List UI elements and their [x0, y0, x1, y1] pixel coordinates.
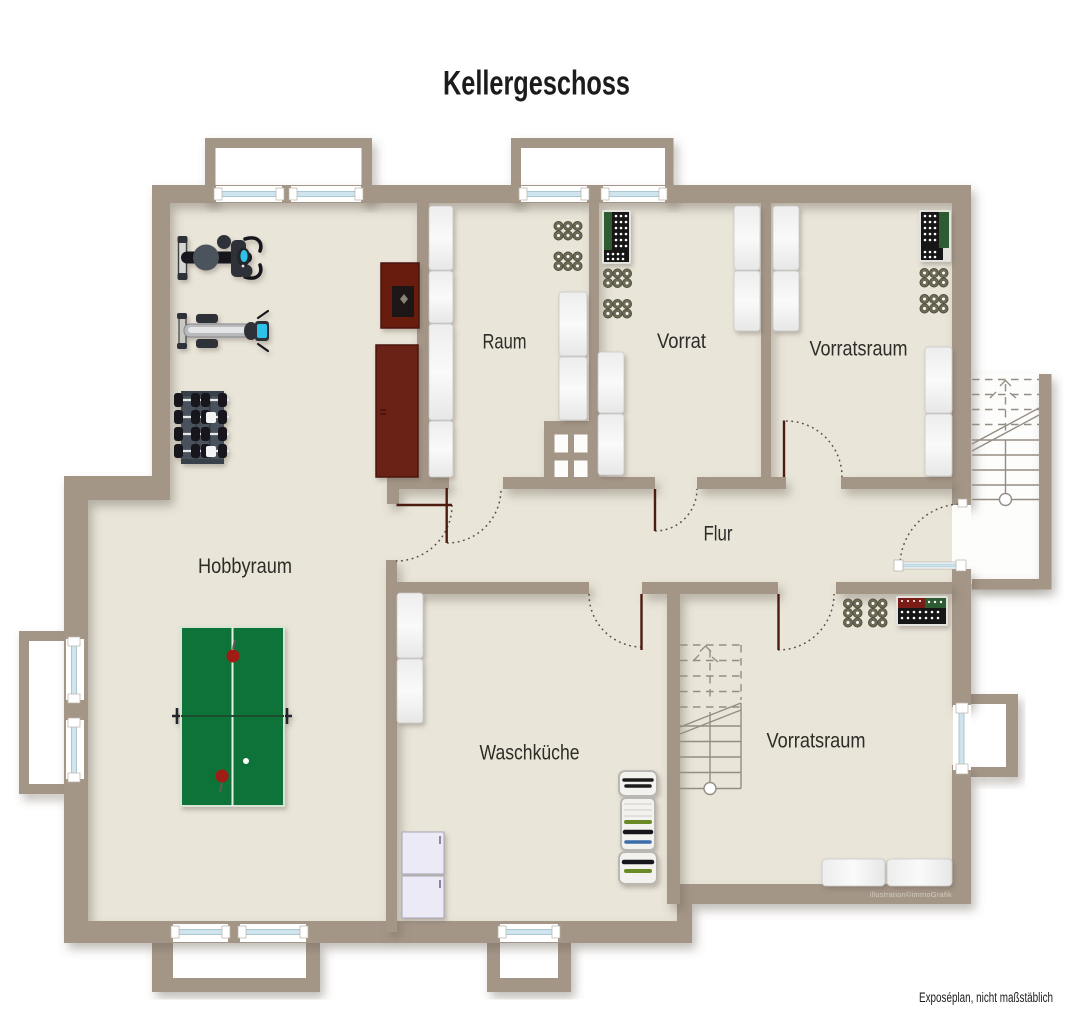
- svg-text:Raum: Raum: [483, 331, 527, 354]
- svg-text:Vorratsraum: Vorratsraum: [767, 730, 866, 753]
- svg-text:Flur: Flur: [704, 523, 733, 546]
- svg-text:Kellergeschoss: Kellergeschoss: [443, 65, 630, 103]
- svg-text:Vorratsraum: Vorratsraum: [810, 338, 908, 361]
- svg-text:Exposéplan, nicht maßstäblich: Exposéplan, nicht maßstäblich: [919, 990, 1053, 1005]
- svg-text:Waschküche: Waschküche: [480, 742, 580, 765]
- svg-text:Hobbyraum: Hobbyraum: [198, 555, 292, 578]
- svg-text:illustration©immoGrafik: illustration©immoGrafik: [870, 890, 952, 899]
- svg-text:Vorrat: Vorrat: [657, 330, 706, 353]
